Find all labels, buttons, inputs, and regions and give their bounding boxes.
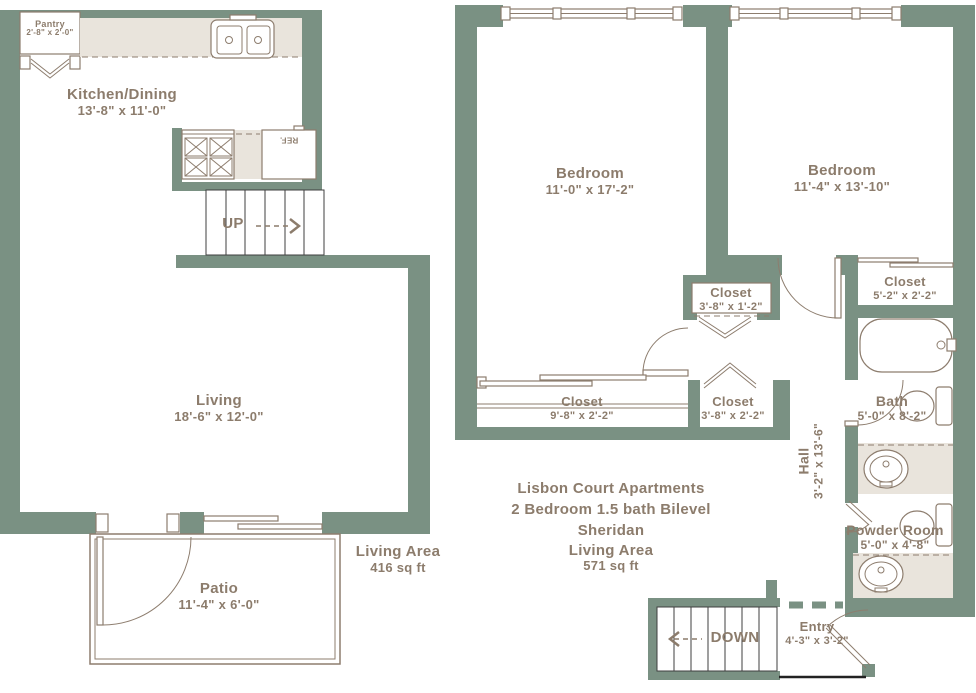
bedroom-right-label: Bedroom 11'-4" x 13'-10"	[794, 163, 890, 194]
hall-label: Hall 3'-2" x 13'-6"	[796, 423, 825, 499]
stairs-down-label: DOWN	[711, 630, 760, 647]
bath-vanity	[858, 443, 953, 494]
entry-label: Entry 4'-3" x 3'-2"	[785, 620, 849, 647]
plan-title: Lisbon Court Apartments	[517, 481, 704, 498]
stove	[182, 130, 234, 179]
lower-area-label: Living Area 416 sq ft	[356, 544, 440, 575]
kitchen-sink	[211, 15, 274, 58]
closet-long-label: Closet 9'-8" x 2'-2"	[550, 395, 614, 422]
kitchen-dining-label: Kitchen/Dining 13'-8" x 11'-0"	[67, 87, 177, 118]
bedroom-window-right	[730, 7, 901, 20]
plan-subtitle: 2 Bedroom 1.5 bath Bilevel	[511, 502, 711, 519]
closet-small-bifold-door	[704, 363, 756, 388]
closet-middle-label: Closet 3'-8" x 1'-2"	[699, 286, 763, 313]
upper-area-value: 571 sq ft	[583, 559, 638, 574]
living-label: Living 18'-6" x 12'-0"	[174, 393, 264, 424]
bathtub	[860, 319, 956, 372]
patio-sliding-door	[204, 516, 322, 529]
bedroom-right-door	[778, 258, 841, 318]
bedroom-window-left	[501, 7, 682, 20]
bedroom-left-door	[643, 328, 688, 376]
bath-label: Bath 5'-0" x 8'-2"	[857, 394, 926, 423]
stairs-up-label: UP	[222, 216, 243, 233]
closet-right-sliding-door	[858, 258, 953, 267]
patio-label: Patio 11'-4" x 6'-0"	[178, 581, 259, 612]
refrigerator-label: REF.	[280, 135, 299, 144]
closet-right-label: Closet 5'-2" x 2'-2"	[873, 275, 937, 302]
powder-vanity	[853, 553, 953, 598]
bedroom-left-label: Bedroom 11'-0" x 17'-2"	[546, 166, 635, 197]
floor-plan: Pantry 2'-8" x 2'-0" Kitchen/Dining 13'-…	[0, 0, 976, 693]
closet-small-label: Closet 3'-8" x 2'-2"	[701, 395, 765, 422]
powder-room-label: Powder Room 5'-0" x 4'-8"	[846, 523, 943, 552]
pantry-label: Pantry 2'-8" x 2'-0"	[26, 19, 73, 38]
plan-location: Sheridan	[578, 523, 645, 540]
patio-door	[97, 537, 191, 625]
